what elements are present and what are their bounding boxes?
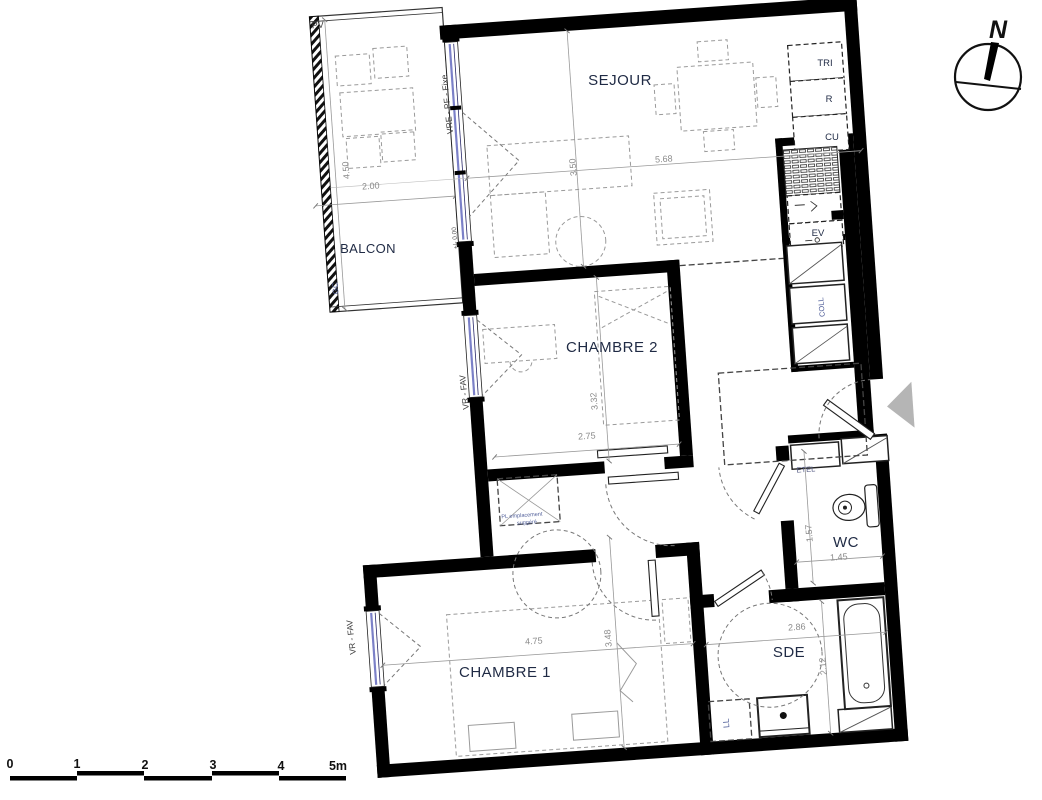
etel-label: ETEL — [796, 464, 815, 474]
dim-chambre1-height: 3.48 — [602, 629, 613, 647]
shaft-duct-2 — [792, 324, 849, 364]
dim-sejour-width: 5.68 — [655, 153, 673, 164]
scale-label-5m: 5m — [329, 759, 347, 773]
room-label-chambre2: CHAMBRE 2 — [566, 339, 658, 356]
scale-segment — [77, 771, 144, 776]
scale-segment — [144, 776, 212, 781]
room-label-chambre1: CHAMBRE 1 — [459, 664, 551, 681]
dim-chambre1-width: 4.75 — [525, 635, 543, 646]
washing-machine-label: LL — [721, 718, 732, 729]
balcony — [302, 8, 462, 313]
scale-label-4: 4 — [278, 759, 285, 773]
kitchen-label-tri: TRI — [817, 58, 832, 69]
kitchen-box-fridge — [790, 78, 846, 118]
scale-segment — [212, 771, 279, 776]
dim-sde-width: 2.86 — [788, 621, 806, 632]
dim-chambre2-height: 3.32 — [588, 392, 599, 410]
dim-sejour-height: 3.50 — [567, 158, 578, 176]
scale-segment — [279, 776, 346, 781]
dim-balcon-height: 4.50 — [340, 161, 351, 179]
scale-segment — [10, 776, 77, 781]
dim-sde-height: 2.12 — [817, 657, 828, 675]
note-gc: GC — [330, 282, 340, 295]
washbasin — [757, 695, 810, 737]
room-label-balcon: BALCON — [340, 241, 396, 256]
dim-chambre2-width: 2.75 — [578, 430, 596, 441]
scale-label-0: 0 — [7, 757, 14, 771]
bathtub — [837, 597, 890, 709]
dim-wc-height: 1.57 — [803, 524, 814, 542]
dim-wc-width: 1.45 — [830, 551, 848, 562]
kitchen-label-r: R — [826, 94, 833, 105]
floor-plan-page: SEJOUR BALCON CHAMBRE 2 CHAMBRE 1 WC SDE… — [0, 0, 1042, 800]
scale-label-1: 1 — [74, 757, 81, 771]
kitchen-label-ev: EV — [812, 228, 825, 239]
shaft-label-coll: COLL — [816, 297, 827, 317]
shaft-duct-1 — [787, 242, 845, 284]
shaft-wc — [841, 436, 889, 464]
scale-label-3: 3 — [210, 758, 217, 772]
room-label-wc: WC — [833, 534, 859, 551]
note-pv: PV — [311, 20, 324, 31]
kitchen-box-tri — [788, 42, 844, 82]
room-label-sejour: SEJOUR — [588, 72, 652, 89]
north-label: N — [989, 16, 1008, 44]
dim-balcon-width: 2.00 — [362, 180, 380, 191]
kitchen-label-cu: CU — [825, 132, 839, 143]
room-label-sde: SDE — [773, 644, 805, 661]
floor-plan-drawing: SEJOUR BALCON CHAMBRE 2 CHAMBRE 1 WC SDE… — [0, 0, 1042, 800]
scale-label-2: 2 — [142, 758, 149, 772]
